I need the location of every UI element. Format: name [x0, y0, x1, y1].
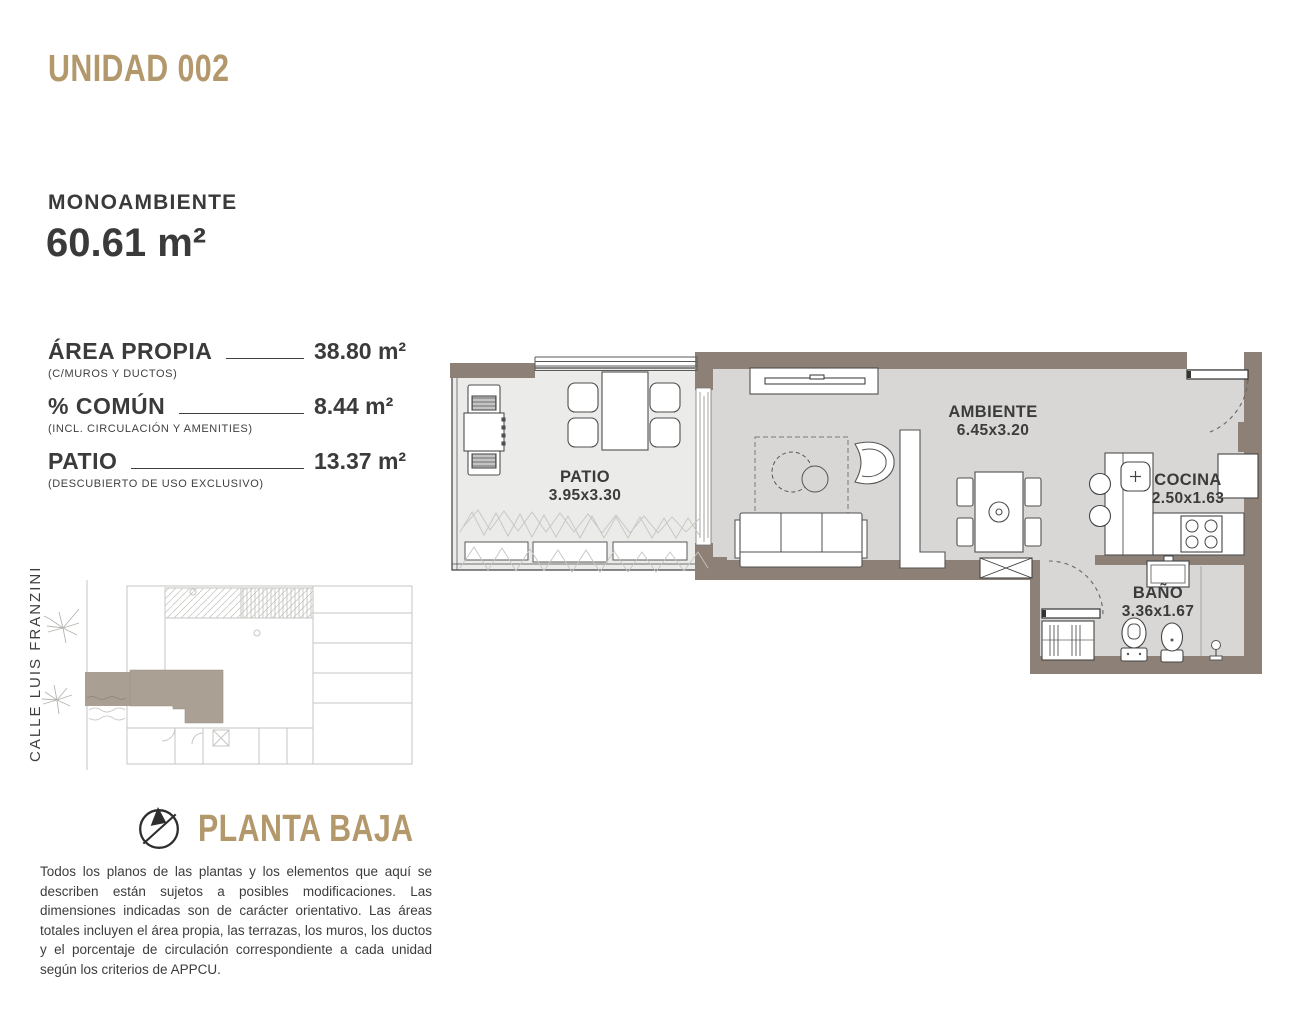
room-name: PATIO	[549, 468, 622, 487]
area-breakdown: ÁREA PROPIA 38.80 m² (C/MUROS Y DUCTOS) …	[48, 338, 414, 503]
area-value: 8.44 m²	[314, 393, 414, 420]
kitchen-sink	[1121, 462, 1150, 491]
planter-boxes	[465, 542, 687, 562]
room-label-cocina: COCINA 2.50x1.63	[1152, 471, 1225, 509]
stool	[1090, 506, 1111, 527]
sofa	[735, 513, 867, 567]
area-row-comun: % COMÚN 8.44 m² (INCL. CIRCULACIÓN Y AME…	[48, 393, 414, 435]
area-label: PATIO	[48, 448, 117, 475]
site-plan-drawing	[25, 578, 420, 778]
stove	[1181, 516, 1222, 552]
room-name: COCINA	[1152, 471, 1225, 490]
room-label-patio: PATIO 3.95x3.30	[549, 468, 622, 506]
area-value: 38.80 m²	[314, 338, 414, 365]
stool	[1090, 474, 1111, 495]
floor-plan: PATIO 3.95x3.30 AMBIENTE 6.45x3.20 COCIN…	[450, 340, 1265, 690]
unit-title-text: UNIDAD 002	[48, 48, 229, 91]
room-label-ambiente: AMBIENTE 6.45x3.20	[948, 403, 1037, 441]
duct-box	[980, 558, 1032, 578]
total-area-value: 60.61 m²	[46, 221, 206, 266]
area-caption: (INCL. CIRCULACIÓN Y AMENITIES)	[48, 423, 414, 435]
area-caption: (C/MUROS Y DUCTOS)	[48, 368, 414, 380]
patio-dining-set	[568, 372, 680, 450]
tree-icon	[42, 609, 79, 714]
room-label-bano: BAÑO 3.36x1.67	[1122, 584, 1195, 622]
leader-line	[226, 358, 304, 359]
plan-sheet: UNIDAD 002 MONOAMBIENTE 60.61 m² ÁREA PR…	[0, 0, 1299, 1024]
floor-level-text: PLANTA BAJA	[198, 808, 414, 851]
floor-row: PLANTA BAJA	[136, 806, 467, 852]
compass-icon	[136, 806, 182, 852]
site-plan	[25, 578, 420, 778]
page-title: UNIDAD 002	[48, 48, 275, 91]
disclaimer-text: Todos los planos de las plantas y los el…	[40, 862, 432, 979]
room-dims: 3.95x3.30	[549, 487, 622, 505]
room-name: AMBIENTE	[948, 403, 1037, 422]
room-dims: 6.45x3.20	[948, 422, 1037, 440]
grill-icon	[464, 385, 505, 475]
bidet	[1161, 623, 1183, 662]
area-label: ÁREA PROPIA	[48, 338, 212, 365]
room-dims: 2.50x1.63	[1152, 490, 1225, 508]
leader-line	[179, 413, 304, 414]
room-name: BAÑO	[1122, 584, 1195, 603]
area-row-propia: ÁREA PROPIA 38.80 m² (C/MUROS Y DUCTOS)	[48, 338, 414, 380]
toilet	[1121, 618, 1147, 661]
room-dims: 3.36x1.67	[1122, 603, 1195, 621]
sliding-door	[696, 388, 711, 545]
floor-level-title: PLANTA BAJA	[198, 808, 467, 851]
area-row-patio: PATIO 13.37 m² (DESCUBIERTO DE USO EXCLU…	[48, 448, 414, 490]
tv-console	[750, 368, 878, 394]
area-label: % COMÚN	[48, 393, 165, 420]
unit-type-label: MONOAMBIENTE	[48, 191, 237, 215]
closet	[1042, 621, 1094, 660]
floor-plan-drawing	[450, 340, 1265, 690]
area-caption: (DESCUBIERTO DE USO EXCLUSIVO)	[48, 478, 414, 490]
leader-line	[131, 468, 304, 469]
coffee-table-small	[802, 466, 828, 492]
area-value: 13.37 m²	[314, 448, 414, 475]
bath-sink	[1147, 556, 1189, 587]
